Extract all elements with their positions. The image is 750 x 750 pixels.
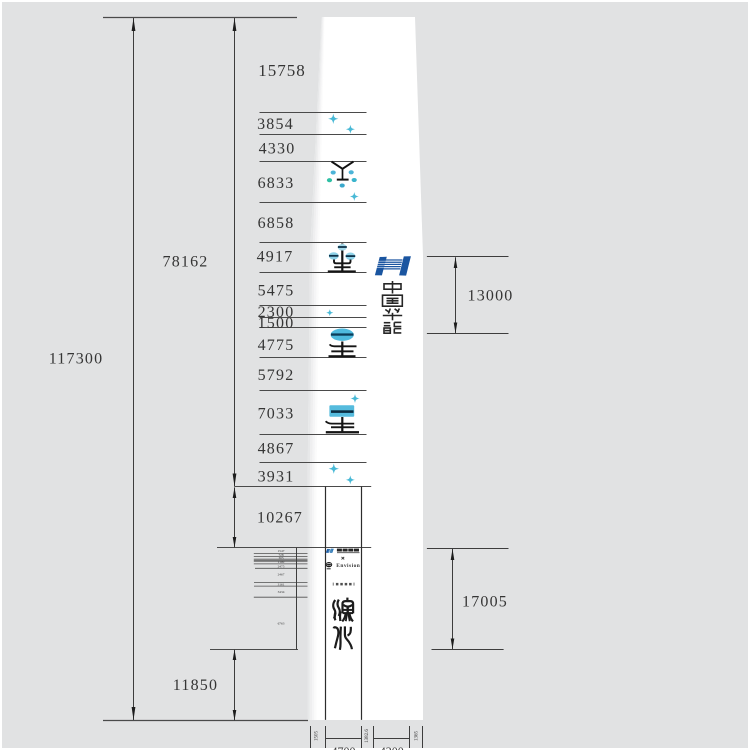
svg-text:6763: 6763 <box>278 622 285 626</box>
svg-text:4700: 4700 <box>332 744 356 750</box>
svg-text:Envision: Envision <box>336 563 360 569</box>
svg-text:7033: 7033 <box>258 406 295 423</box>
svg-text:13000: 13000 <box>468 288 514 305</box>
svg-text:1382.6: 1382.6 <box>365 729 370 743</box>
svg-text:4200: 4200 <box>380 744 404 750</box>
svg-text:2475: 2475 <box>278 564 285 568</box>
svg-text:10267: 10267 <box>257 510 303 527</box>
svg-text:3161: 3161 <box>278 582 285 586</box>
svg-text:5792: 5792 <box>258 367 295 384</box>
svg-text:11850: 11850 <box>173 677 218 694</box>
svg-text:1505: 1505 <box>315 731 320 742</box>
svg-text:3434: 3434 <box>278 590 285 594</box>
svg-text:6858: 6858 <box>258 215 295 232</box>
svg-text:15758: 15758 <box>258 61 306 80</box>
svg-text:1500: 1500 <box>258 315 295 332</box>
svg-text:4867: 4867 <box>258 441 295 458</box>
svg-text:6833: 6833 <box>258 175 295 192</box>
svg-text:78162: 78162 <box>163 254 209 271</box>
svg-text:17005: 17005 <box>462 594 508 611</box>
svg-text:4917: 4917 <box>257 249 294 266</box>
svg-text:2467: 2467 <box>278 573 285 577</box>
svg-text:4775: 4775 <box>258 337 295 354</box>
svg-text:3854: 3854 <box>257 116 294 133</box>
svg-text:3931: 3931 <box>258 469 295 486</box>
svg-text:117300: 117300 <box>49 351 104 368</box>
svg-text:5475: 5475 <box>258 283 295 300</box>
svg-text:1365: 1365 <box>414 731 419 742</box>
svg-text:4330: 4330 <box>259 141 296 158</box>
